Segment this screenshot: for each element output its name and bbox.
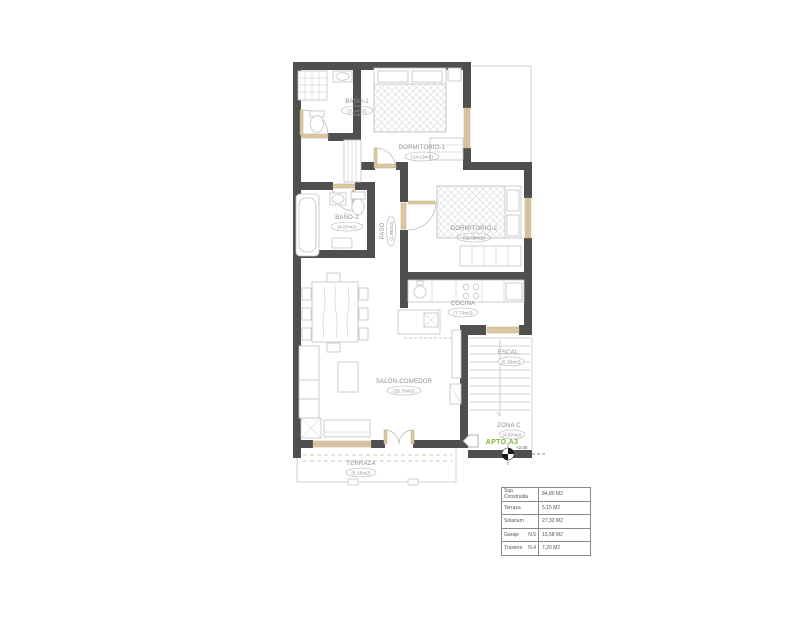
bathroom2-fixtures — [296, 192, 365, 256]
room-label-dormitorio1: DORMITORIO-1 — [399, 145, 446, 151]
room-label-bano1: BAÑO-1 — [345, 98, 369, 105]
table-row-label: Sup. Construida — [502, 488, 539, 501]
room-area-salon: (25.76m2) — [393, 389, 415, 395]
table-row-value: 84,80 M2 — [539, 488, 590, 501]
room-label-bano2: BAÑO-2 — [335, 214, 359, 221]
table-row-label: Solarium — [502, 515, 539, 528]
room-label-dormitorio2: DORMITORIO-2 — [451, 226, 498, 232]
dining-table — [302, 273, 368, 352]
room-area-bano2: (4.07m2) — [337, 225, 357, 231]
table-row: Terraza 5,15 M2 — [502, 502, 590, 516]
room-area-cocina: (7.72m2) — [453, 311, 473, 317]
room-label-terraza: TERRAZA — [346, 461, 375, 467]
table-row-label: Terraza — [502, 502, 539, 515]
room-area-dormitorio1: (14.13m2) — [411, 155, 433, 161]
room-area-escalera: (5.30m2) — [501, 360, 521, 366]
room-area-zona-comun: (4.87m2) — [502, 433, 522, 439]
summary-table: Sup. Construida 84,80 M2 Terraza 5,15 M2… — [501, 487, 591, 556]
table-row: Garaje N.5 13,58 M2 — [502, 529, 590, 543]
table-row-value: 13,58 M2 — [539, 529, 590, 542]
row-label-text: Garaje — [504, 532, 519, 538]
floorplan-drawing: +2.00 BAÑO-1 (3.94m2) DORMITORIO-1 (14.1… — [0, 0, 800, 640]
row-label-text: Trastero — [504, 545, 522, 551]
room-area-bano1: (3.94m2) — [347, 109, 367, 115]
table-row-value: 27,32 M2 — [539, 515, 590, 528]
room-area-terraza: (5.15m2) — [351, 471, 371, 477]
room-area-paso: (1.85m2) — [389, 221, 395, 241]
room-label-escalera: ESCAL. — [498, 350, 521, 356]
row-ref-text: N.4 — [528, 545, 536, 551]
table-row-value: 7,20 M2 — [539, 542, 590, 555]
table-row-label: Garaje N.5 — [502, 529, 539, 542]
row-label-text: Solarium — [504, 518, 524, 524]
room-label-paso: PASO — [380, 222, 386, 239]
table-row: Sup. Construida 84,80 M2 — [502, 488, 590, 502]
apartment-label: APTO A3 — [486, 439, 519, 446]
bed-dormitorio1 — [374, 68, 461, 132]
row-ref-text: N.5 — [528, 532, 536, 538]
room-label-salon: SALÓN-COMEDOR — [376, 378, 433, 385]
row-label-text: Sup. Construida — [504, 488, 536, 500]
room-label-zona-comun: ZONA C — [497, 423, 521, 429]
table-row: Trastero N.4 7,20 M2 — [502, 542, 590, 555]
row-label-text: Terraza — [504, 505, 521, 511]
table-row-label: Trastero N.4 — [502, 542, 539, 555]
table-row-value: 5,15 M2 — [539, 502, 590, 515]
room-label-cocina: COCINA — [451, 301, 476, 307]
floorplan-page: +2.00 BAÑO-1 (3.94m2) DORMITORIO-1 (14.1… — [0, 0, 800, 640]
table-row: Solarium 27,32 M2 — [502, 515, 590, 529]
room-area-dormitorio2: (11.88m2) — [463, 236, 485, 242]
